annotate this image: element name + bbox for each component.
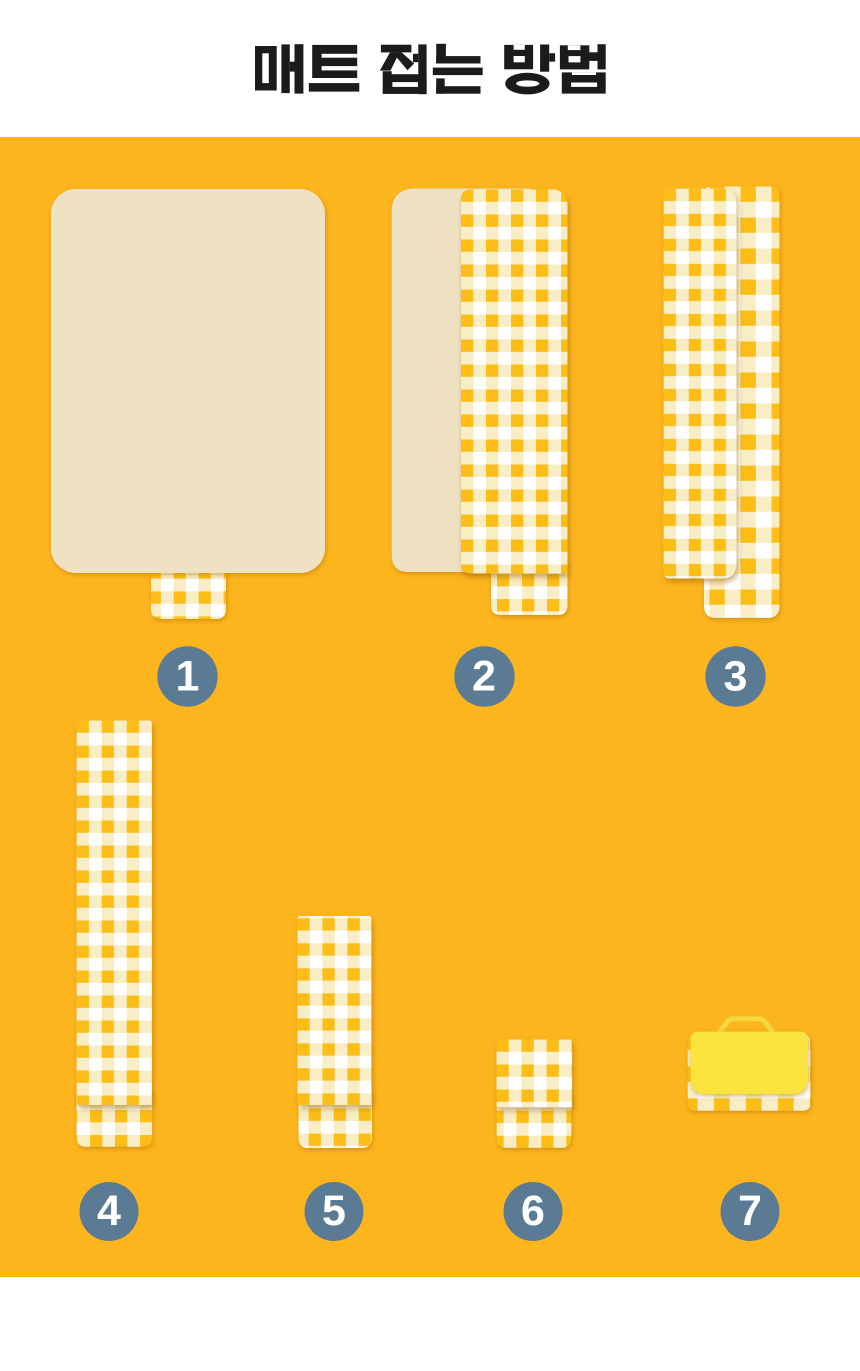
svg-text:3: 3: [724, 653, 748, 701]
svg-text:7: 7: [738, 1187, 762, 1235]
svg-text:1: 1: [176, 653, 200, 701]
svg-text:5: 5: [322, 1187, 346, 1235]
svg-text:2: 2: [472, 653, 496, 701]
svg-text:6: 6: [521, 1187, 545, 1235]
svg-text:4: 4: [97, 1187, 121, 1235]
